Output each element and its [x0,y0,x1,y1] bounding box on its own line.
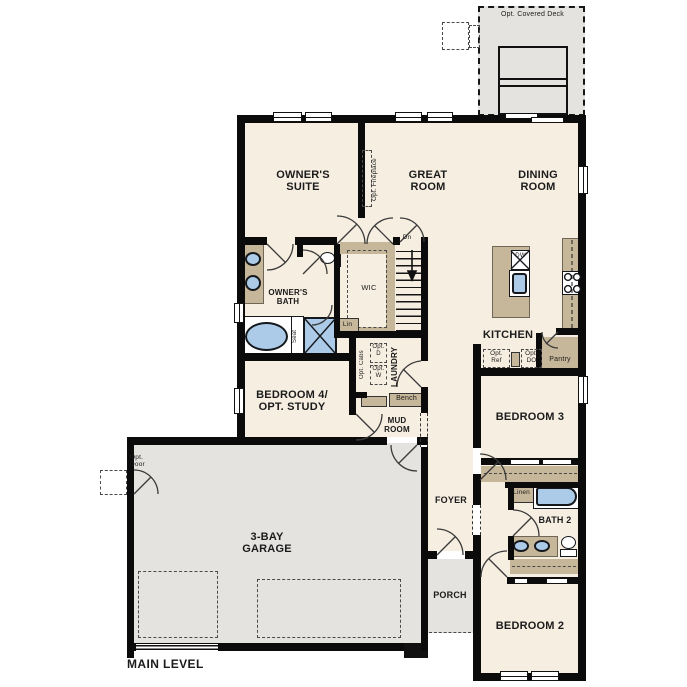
room-label-foyer: FOYER [429,495,473,505]
door-leaf [513,518,531,536]
plan-title: MAIN LEVEL [127,658,257,671]
stair-arrow-head [408,271,416,280]
label-opt-w: Opt. W [370,366,387,379]
label-opt-do: Opt. DO [521,350,542,364]
door-leaf [403,369,421,387]
room-label-mud-room: MUD ROOM [377,417,417,435]
room-label-porch: PORCH [428,590,472,600]
door-leaf [267,244,285,262]
label-opt-cabs: Opt. Cabs [359,343,369,387]
door-leaf [399,445,417,463]
room-label-bedroom2: BEDROOM 2 [487,620,573,632]
door-leaf [375,226,393,244]
room-label-laundry: LAUNDRY [391,341,405,393]
room-label-bedroom4: BEDROOM 4/ OPT. STUDY [240,389,344,414]
door-leaf [437,537,455,555]
label-lin: Lin [336,321,359,328]
label-opt-d: Opt. D [370,344,387,357]
label-dn: Dn [399,234,415,241]
label-linen: Linen [508,489,535,496]
burner [574,286,581,293]
label-pantry: Pantry [543,356,577,364]
door-leaf [356,414,374,432]
door-leaf [134,477,151,494]
label-dw: DW [512,253,529,260]
floor-plan: Opt. Covered Deck [0,0,687,687]
label-opt-door: Opt. Door [130,454,162,469]
plan-symbols [0,0,687,687]
room-label-garage: 3-BAY GARAGE [235,531,299,556]
label-seat: Seat [292,318,303,354]
burner [565,274,572,281]
door-leaf [337,224,357,244]
label-wic: WIC [354,284,384,292]
label-opt-fireplace: Opt. Fireplace [371,149,382,211]
door-leaf [480,462,498,480]
room-label-kitchen: KITCHEN [477,329,539,341]
label-bench: Bench [389,395,424,403]
door-leaf [546,332,558,344]
room-label-dining-room: DINING ROOM [508,169,568,194]
room-label-bedroom3: BEDROOM 3 [487,411,573,423]
door-leaf [489,559,507,577]
label-opt-ref: Opt. Ref [484,350,509,364]
room-label-owners-suite: OWNER'S SUITE [272,169,334,194]
room-label-great-room: GREAT ROOM [398,169,458,194]
room-label-bath2: BATH 2 [533,515,577,525]
room-label-owners-bath: OWNER'S BATH [260,289,316,307]
burner [565,286,572,293]
door-arc-shower [312,305,332,325]
burner [574,274,581,281]
door-leaf [303,257,320,274]
